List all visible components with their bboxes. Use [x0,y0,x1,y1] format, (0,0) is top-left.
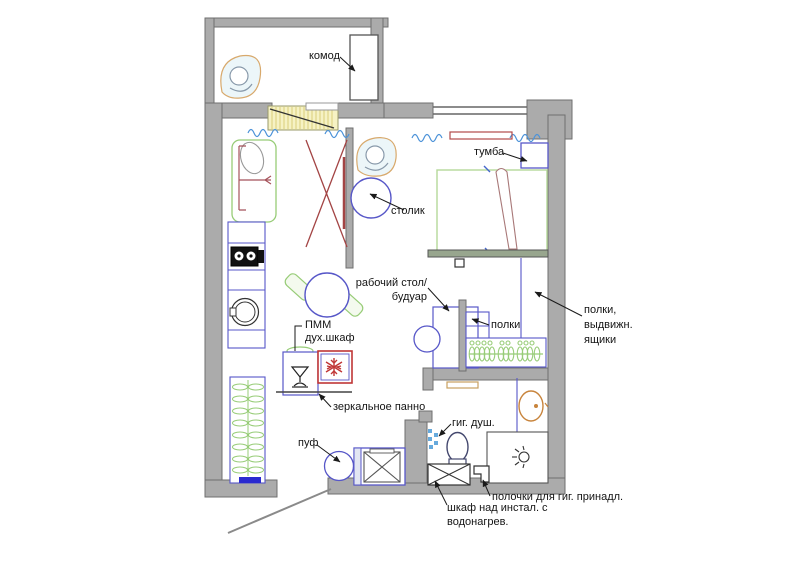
label-shkaf-line2: водонагрев. [447,516,508,529]
hygiene-shower-icon [428,429,438,449]
fridge [318,351,352,383]
towel-rail [447,382,478,388]
curtains [248,130,540,142]
label-gig-dush: гиг. душ. [452,417,495,430]
balcony-door [268,103,338,130]
tumba-nightstand [521,143,548,168]
label-pmm-line1: ПММ [305,319,331,332]
label-pmm-line2: дух.шкаф [305,332,355,345]
komod-dresser [350,35,378,100]
balcony-chair [221,55,261,98]
washing-machine [354,448,405,485]
installation-box [428,464,470,485]
label-komod: комод [309,50,340,63]
bathroom [428,378,548,485]
label-shelves-line2: выдвижн. [584,319,633,332]
bedroom-chair [357,138,396,176]
folding-door [306,140,347,247]
radiator [450,132,512,139]
label-shelves-line3: ящики [584,334,616,347]
kitchen-sofa [232,139,276,222]
pouf [325,452,354,481]
pmm-oven-cabinet [283,347,318,395]
hall-wardrobe [230,377,265,483]
label-tumba: тумба [474,146,504,159]
stool [414,326,440,352]
bedroom-window [433,107,527,114]
dining-set [283,272,365,318]
stolik-table [351,178,391,218]
label-desk-line2: будуар [392,291,427,304]
label-polki: полки [491,319,520,332]
label-shelves-line1: полки, [584,304,616,317]
label-mirror: зеркальное панно [333,401,425,414]
bathroom-sink-icon [519,391,548,421]
label-stolik: столик [391,205,425,218]
label-shkaf-line1: шкаф над инстал. с [447,502,548,515]
stub-wall [459,300,466,371]
label-desk-line1: рабочий стол/ [356,277,427,290]
floor-plan: комод тумба столик рабочий стол/ будуар … [0,0,800,565]
kitchen-counter [228,222,265,348]
bed [428,166,548,267]
label-puf: пуф [298,437,318,450]
